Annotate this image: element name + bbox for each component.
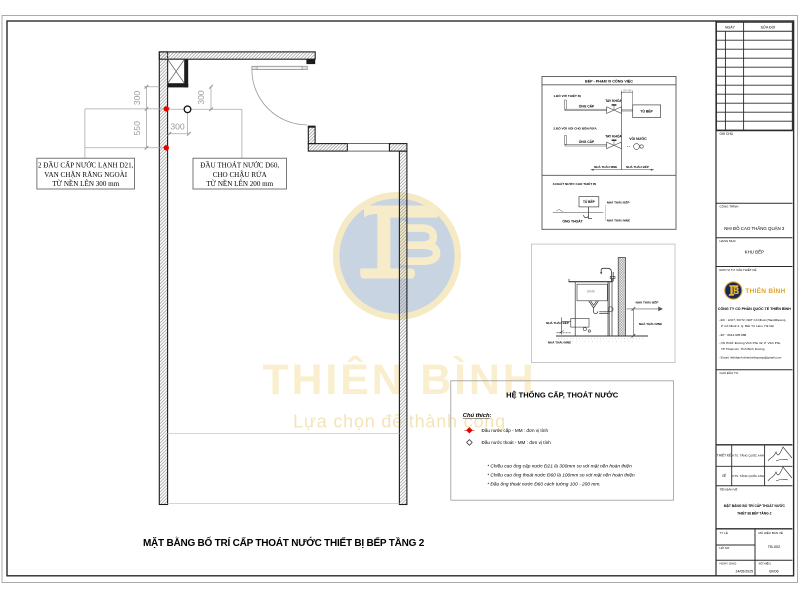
svg-text:BV06: BV06 [769,569,778,573]
svg-text:NHÀ THẦU BẾP: NHÀ THẦU BẾP [607,200,630,205]
svg-text:NHÀ THẦU BẾP: NHÀ THẦU BẾP [636,300,659,305]
svg-text:NHÀ THẦU BẾP: NHÀ THẦU BẾP [546,320,569,325]
svg-text:ỐNG CẤP: ỐNG CẤP [579,139,595,144]
svg-text:NHI ĐỒ CAO THẮNG QUẬN 3: NHI ĐỒ CAO THẮNG QUẬN 3 [724,226,785,231]
svg-text:- ĐC : LK07, DCT2, KĐT Cổ Nhuế: - ĐC : LK07, DCT2, KĐT Cổ Nhuế (HandiRes… [719,318,787,322]
svg-text:P. Cổ Nhuế 2, Q. Bắc Từ Liêm,: P. Cổ Nhuế 2, Q. Bắc Từ Liêm, Hà Nội [721,323,774,328]
svg-text:TP Thuận An, Tỉnh Bình Dương: TP Thuận An, Tỉnh Bình Dương [721,347,765,351]
svg-text:SINK: SINK [587,290,596,294]
svg-text:ĐƠN VỊ TƯ VẤN THIẾT KẾ: ĐƠN VỊ TƯ VẤN THIẾT KẾ [720,267,757,272]
svg-text:TỦ BẾP: TỦ BẾP [583,199,596,204]
svg-text:ỐNG CẤP: ỐNG CẤP [579,104,595,109]
svg-text:NHÀ THẦU MNE: NHÀ THẦU MNE [607,218,630,223]
svg-text:Chú thích:: Chú thích: [463,413,492,419]
svg-text:TAY KHÓA: TAY KHÓA [605,98,622,103]
svg-text:Đầu nước thoát - MM : đơn vị t: Đầu nước thoát - MM : đơn vị tính [482,440,552,445]
svg-text:VAN CHẶN RĂNG NGOÀI: VAN CHẶN RĂNG NGOÀI [44,171,127,179]
svg-text:- ĐT : 0914.905.888: - ĐT : 0914.905.888 [719,333,747,337]
svg-text:VẼ: VẼ [722,473,726,478]
svg-text:* Chiều cao ống thoát nước Đ60: * Chiều cao ống thoát nước Đ60 là 100mm … [487,471,635,478]
svg-text:300: 300 [132,91,142,106]
svg-text:THIẾT KẾ: THIẾT KẾ [717,453,731,458]
svg-text:TỪ NỀN LÊN 200 mm: TỪ NỀN LÊN 200 mm [206,180,273,188]
svg-text:NHÀ THẦU MNE: NHÀ THẦU MNE [548,339,571,344]
svg-text:MÃ HIỆU BẢN VẼ: MÃ HIỆU BẢN VẼ [759,530,783,535]
svg-text:NHÀ THẦU BẾP: NHÀ THẦU BẾP [626,164,649,169]
svg-text:300: 300 [196,90,206,105]
svg-text:KTS. TĂNG QUỐC ANH: KTS. TĂNG QUỐC ANH [732,453,763,458]
svg-text:24/05/2025: 24/05/2025 [736,569,754,573]
svg-text:TỪ NỀN LÊN 300 mm: TỪ NỀN LÊN 300 mm [52,180,119,188]
svg-text:100-150: 100-150 [623,89,632,92]
svg-text:NHÀ THẦU MNE: NHÀ THẦU MNE [594,164,617,169]
svg-text:2.ĐỔ VỚI VÒI CHO BỒN RỬA: 2.ĐỔ VỚI VÒI CHO BỒN RỬA [553,126,597,131]
svg-text:CÔNG TY CỔ PHẦN QUỐC TẾ THIÊN: CÔNG TY CỔ PHẦN QUỐC TẾ THIÊN BÌNH [718,306,791,311]
svg-text:ỐNG THOÁT: ỐNG THOÁT [562,218,583,223]
svg-text:CÔNG TRÌNH: CÔNG TRÌNH [720,204,739,209]
svg-text:NGÀY: NGÀY [725,25,736,29]
svg-text:MẶT BẰNG BỐ TRÍ CẤP THOÁT NƯỚC: MẶT BẰNG BỐ TRÍ CẤP THOÁT NƯỚC THIẾT BỊ … [143,535,425,549]
svg-text:HỆ THỐNG CẤP, THOÁT NƯỚC: HỆ THỐNG CẤP, THOÁT NƯỚC [506,390,619,400]
svg-text:* Chiều cao ống cấp nước Đ21 l: * Chiều cao ống cấp nước Đ21 là 300mm so… [487,462,632,469]
svg-text:CHO CHẬU RỬA: CHO CHẬU RỬA [213,171,268,179]
svg-text:1.ĐỔ VỚI THIẾT BỊ: 1.ĐỔ VỚI THIẾT BỊ [553,93,581,98]
svg-text:2 ĐẦU CẤP NƯỚC LẠNH D21,: 2 ĐẦU CẤP NƯỚC LẠNH D21, [38,161,134,169]
svg-text:- CN HCM: Đường Vĩnh Phú 32, P: - CN HCM: Đường Vĩnh Phú 32, P. Vĩnh Phú… [719,341,781,345]
svg-text:BẾP - PHẠM VI CÔNG VIỆC: BẾP - PHẠM VI CÔNG VIỆC [585,78,633,83]
svg-text:TB-002: TB-002 [768,545,780,549]
svg-text:300: 300 [170,122,185,132]
svg-text:* Đầu ống thoát nước Đ60 cách: * Đầu ống thoát nước Đ60 cách tường 100 … [487,480,600,487]
svg-text:SỐ HIỆU: SỐ HIỆU [759,561,771,566]
svg-text:550: 550 [132,121,142,136]
svg-text:GHI CHÚ: GHI CHÚ [720,131,734,136]
svg-text:MẶT BẰNG BỐ TRÍ CẤP THOÁT NƯỚC: MẶT BẰNG BỐ TRÍ CẤP THOÁT NƯỚC [724,503,786,508]
svg-text:KTS. TĂNG QUỐC ANH: KTS. TĂNG QUỐC ANH [732,473,763,478]
svg-text:TAY KHÓA: TAY KHÓA [605,133,622,138]
svg-text:HẠNG MỤC: HẠNG MỤC [720,239,737,243]
svg-text:KHU BẾP: KHU BẾP [745,250,764,255]
svg-text:CHỦ ĐẦU TƯ: CHỦ ĐẦU TƯ [720,370,739,375]
svg-text:TỦ BẾP: TỦ BẾP [640,109,653,114]
svg-text:THIÊN BÌNH: THIÊN BÌNH [745,286,785,295]
svg-text:NHÀ THẦU MNE: NHÀ THẦU MNE [639,321,662,326]
svg-text:TÊN BẢN VẼ: TÊN BẢN VẼ [720,486,738,491]
svg-text:SỬA ĐỔI: SỬA ĐỔI [761,24,776,29]
svg-text:- Email: lethibanh.thienbinhgr: - Email: lethibanh.thienbinhgroup@gmail.… [719,356,782,360]
svg-text:ĐẦU THOÁT NƯỚC D60,: ĐẦU THOÁT NƯỚC D60, [200,161,279,169]
svg-text:VÒI NƯỚC: VÒI NƯỚC [629,136,647,141]
svg-text:THIẾT BỊ BẾP TẦNG 2: THIẾT BỊ BẾP TẦNG 2 [737,511,772,516]
svg-text:Đầu nước cấp - MM : đơn vị tín: Đầu nước cấp - MM : đơn vị tính [482,428,549,433]
svg-text:HỒ SƠ: HỒ SƠ [720,545,730,550]
svg-text:3.NGẮT NƯỚC CHO THIẾT BỊ: 3.NGẮT NƯỚC CHO THIẾT BỊ [553,181,597,186]
svg-text:NGÀY GIAO: NGÀY GIAO [720,562,737,566]
svg-text:TỶ LỆ: TỶ LỆ [720,530,728,535]
